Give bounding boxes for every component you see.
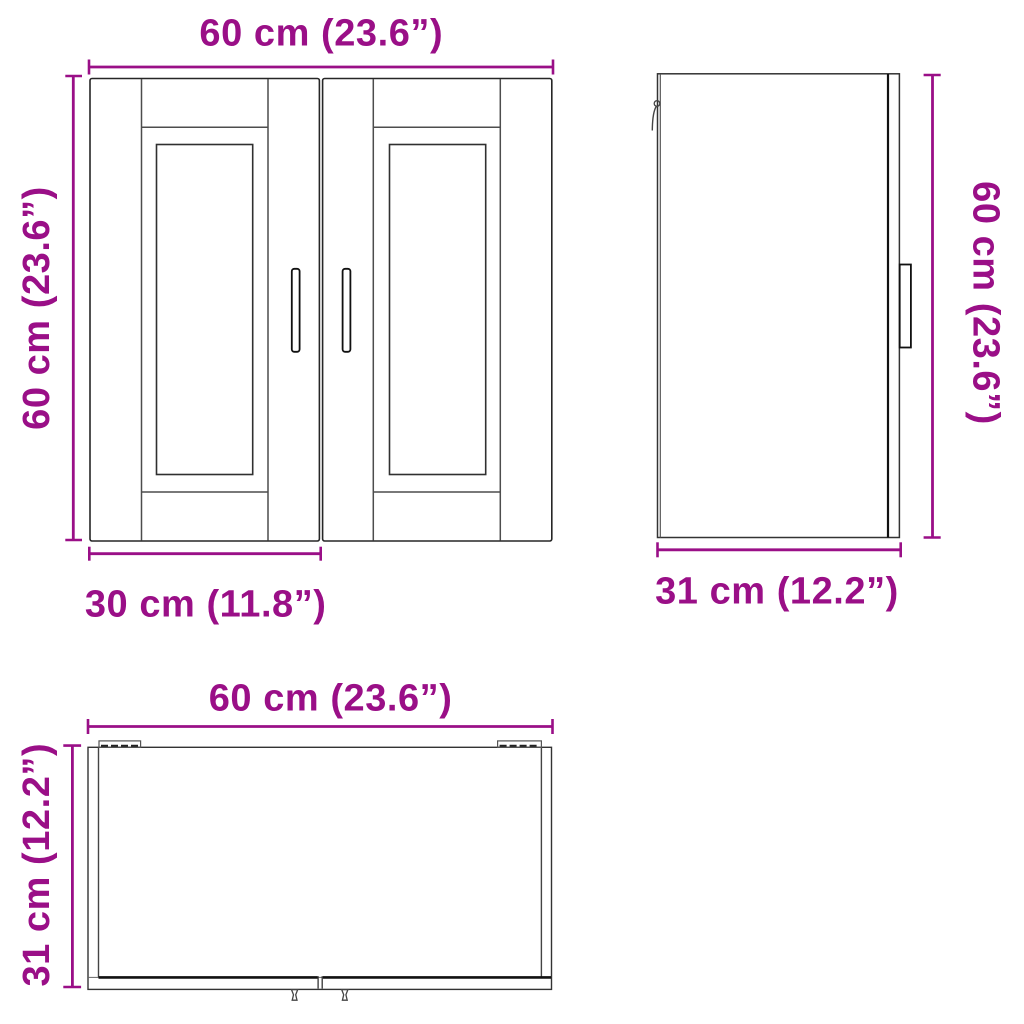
svg-text:60 cm (23.6”): 60 cm (23.6”) [209,678,453,720]
svg-text:60 cm (23.6”): 60 cm (23.6”) [965,181,1007,425]
svg-text:31 cm (12.2”): 31 cm (12.2”) [655,571,899,613]
svg-text:30 cm (11.8”): 30 cm (11.8”) [85,584,327,626]
svg-text:60 cm (23.6”): 60 cm (23.6”) [199,13,443,55]
svg-text:60 cm (23.6”): 60 cm (23.6”) [16,186,58,430]
svg-text:31 cm (12.2”): 31 cm (12.2”) [16,743,58,987]
